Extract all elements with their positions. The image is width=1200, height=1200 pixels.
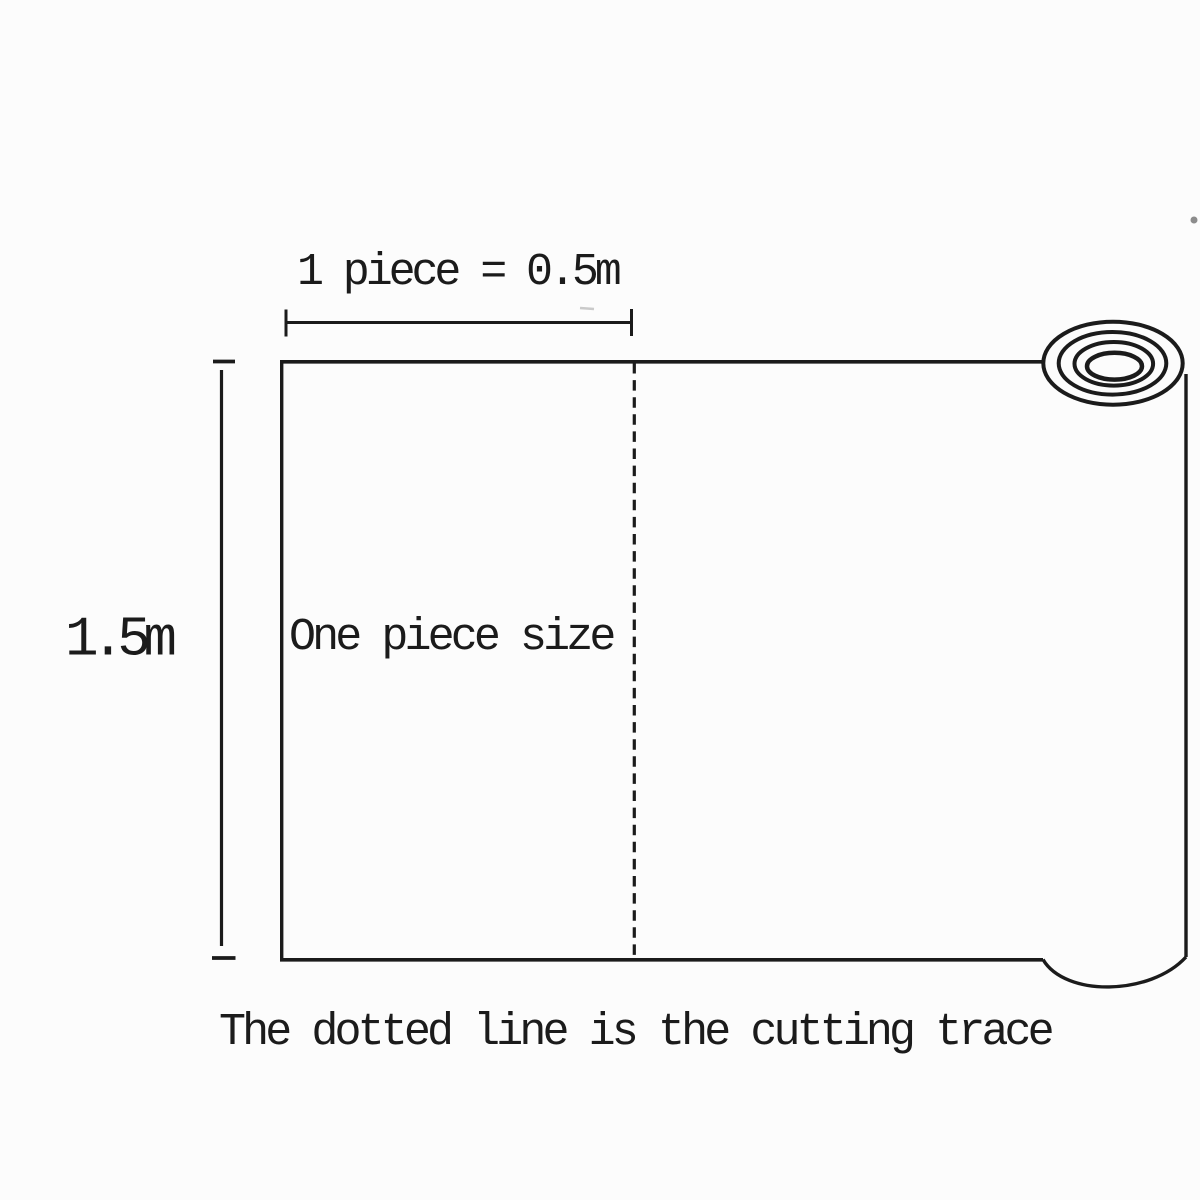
svg-text:1 piece = 0.5m: 1 piece = 0.5m (297, 247, 620, 298)
svg-text:One piece size: One piece size (289, 612, 614, 663)
svg-text:1.5m: 1.5m (65, 608, 174, 672)
svg-text:The dotted line is the cutting: The dotted line is the cutting trace (219, 1007, 1053, 1058)
